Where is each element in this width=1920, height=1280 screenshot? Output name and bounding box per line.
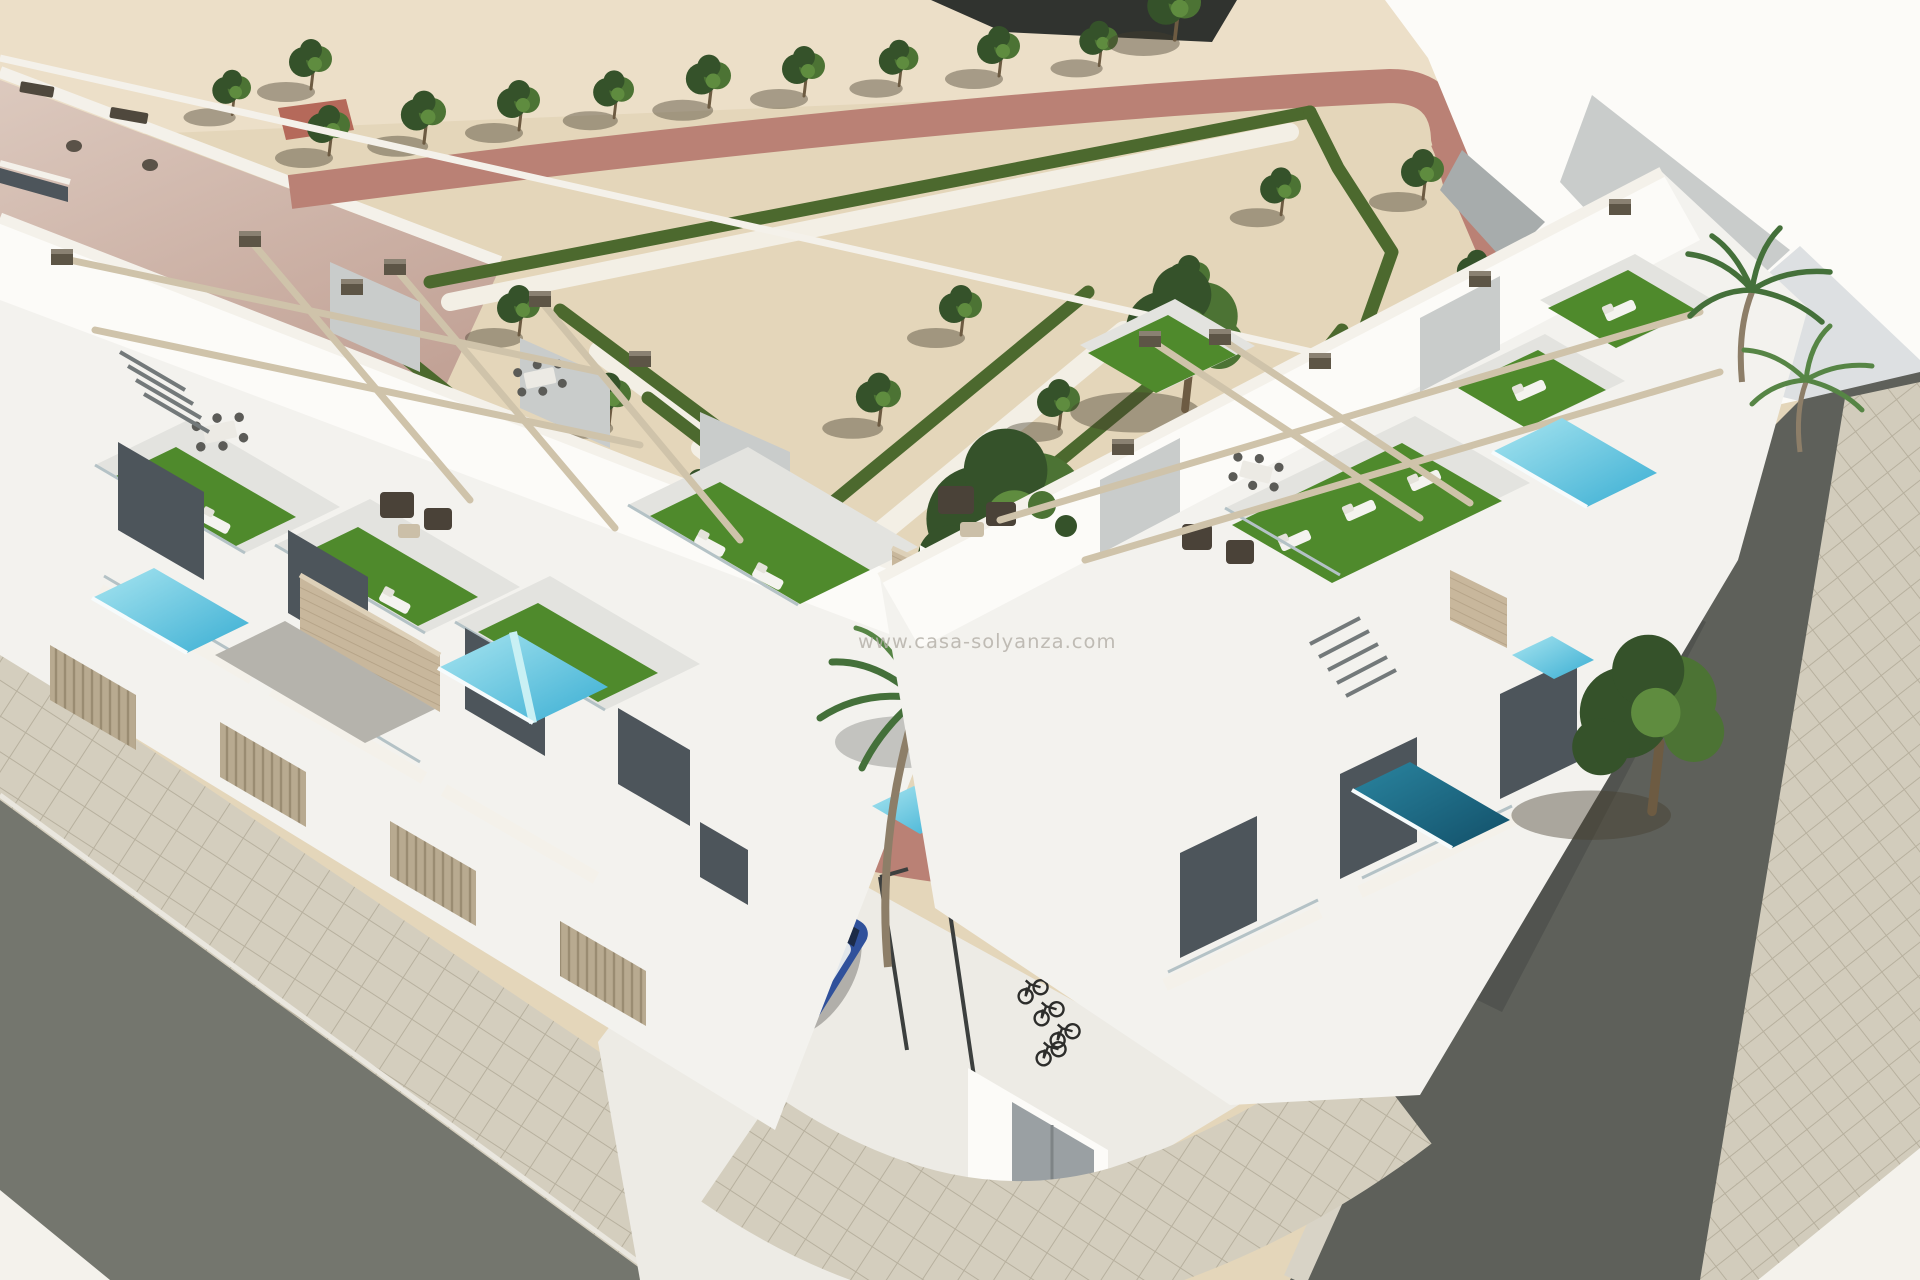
watermark-text: www.casa-solyanza.com bbox=[858, 630, 1116, 653]
potted-plant bbox=[1055, 515, 1077, 537]
render-canvas: www.casa-solyanza.com bbox=[0, 0, 1920, 1280]
property-render-image: www.casa-solyanza.com bbox=[0, 0, 1920, 1280]
